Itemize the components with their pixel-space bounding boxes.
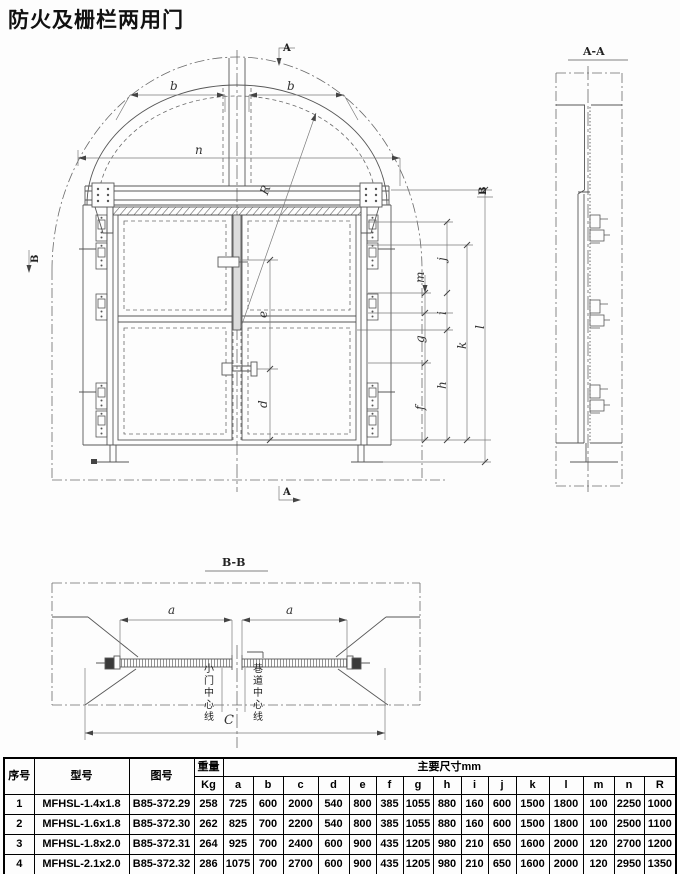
small-door-centerline-label: 小门中心线: [201, 663, 213, 723]
astragal-strip: [233, 215, 241, 330]
door-leaf-left: [118, 215, 232, 440]
dim-value: 900: [349, 835, 376, 855]
row-serial: 1: [4, 795, 34, 815]
dim-value: 210: [461, 835, 488, 855]
side-view-hinges: [590, 215, 610, 413]
wall-right: [336, 617, 420, 705]
dim-label-b-right: b: [287, 80, 295, 92]
dim-value: 2200: [283, 815, 318, 835]
row-drawing-no: B85-372.32: [129, 855, 194, 874]
dim-letter-header: n: [614, 777, 644, 795]
side-view-title: A-A: [583, 46, 605, 57]
dim-value: 385: [376, 815, 403, 835]
dim-value: 1200: [644, 835, 676, 855]
dim-value: 210: [461, 855, 488, 874]
table-row: 4MFHSL-2.1x2.0B85-372.322861075700270060…: [4, 855, 676, 874]
dim-value: 1000: [644, 795, 676, 815]
gusset-plate-left: [92, 183, 114, 207]
door-handle: [222, 362, 257, 376]
row-weight: 262: [194, 815, 223, 835]
latch-box: [218, 257, 239, 267]
centerlines-and-excavation-outline: [52, 50, 622, 748]
dim-label-l: l: [474, 325, 486, 329]
section-marker-a-bottom: A: [283, 488, 291, 498]
dim-value: 540: [318, 795, 349, 815]
row-model: MFHSL-1.4x1.8: [34, 795, 129, 815]
dim-letter-header: m: [583, 777, 614, 795]
row-drawing-no: B85-372.30: [129, 815, 194, 835]
dim-value: 980: [433, 835, 461, 855]
row-model: MFHSL-1.8x2.0: [34, 835, 129, 855]
technical-drawing: [0, 0, 680, 874]
dim-label-i: i: [436, 311, 448, 315]
dim-value: 2000: [549, 835, 583, 855]
plan-section-linework: [52, 571, 420, 705]
dim-value: 900: [349, 855, 376, 874]
dim-value: 160: [461, 795, 488, 815]
dim-value: 435: [376, 835, 403, 855]
dim-value: 1350: [644, 855, 676, 874]
dim-value: 650: [488, 835, 516, 855]
dim-value: 1600: [516, 835, 549, 855]
dim-value: 650: [488, 855, 516, 874]
dim-value: 800: [349, 815, 376, 835]
dim-value: 540: [318, 815, 349, 835]
dim-letter-header: R: [644, 777, 676, 795]
dim-letter-header: a: [223, 777, 253, 795]
dim-letter-header: c: [283, 777, 318, 795]
dim-label-d: d: [257, 400, 269, 408]
dim-value: 2950: [614, 855, 644, 874]
dim-value: 120: [583, 835, 614, 855]
dim-label-f: f: [414, 406, 426, 410]
dim-letter-header: e: [349, 777, 376, 795]
col-header-model: 型号: [34, 758, 129, 795]
dim-value: 600: [488, 815, 516, 835]
dim-value: 385: [376, 795, 403, 815]
dim-value: 435: [376, 855, 403, 874]
dimension-lines: [29, 48, 493, 740]
row-drawing-no: B85-372.29: [129, 795, 194, 815]
dim-letter-header: k: [516, 777, 549, 795]
dimension-ticks: [267, 187, 488, 465]
dim-value: 1205: [403, 835, 433, 855]
dim-letter-header: f: [376, 777, 403, 795]
side-view-linework: [556, 60, 628, 462]
section-marker-a-top: A: [283, 44, 291, 54]
dim-value: 2700: [283, 855, 318, 874]
spec-table: 序号 型号 图号 重量 主要尺寸mm Kg abcdefghijklmnR 1M…: [3, 757, 677, 874]
dim-value: 825: [223, 815, 253, 835]
dim-value: 1500: [516, 815, 549, 835]
dim-value: 700: [253, 855, 283, 874]
dim-value: 1800: [549, 815, 583, 835]
dim-value: 1600: [516, 855, 549, 874]
dim-value: 100: [583, 795, 614, 815]
dim-label-a-left: a: [168, 604, 175, 616]
row-model: MFHSL-1.6x1.8: [34, 815, 129, 835]
col-header-weight: 重量: [194, 758, 223, 777]
dim-value: 1075: [223, 855, 253, 874]
dim-label-m: m: [414, 272, 426, 283]
dim-value: 2000: [283, 795, 318, 815]
col-header-kg: Kg: [194, 777, 223, 795]
table-row: 1MFHSL-1.4x1.8B85-372.292587256002000540…: [4, 795, 676, 815]
dim-letter-header: b: [253, 777, 283, 795]
dim-label-n: n: [195, 144, 203, 156]
dim-label-j: j: [436, 257, 448, 261]
dim-value: 600: [488, 795, 516, 815]
dim-value: 1055: [403, 815, 433, 835]
dim-value: 725: [223, 795, 253, 815]
dim-label-c: C: [224, 714, 234, 727]
dim-label-b-left: b: [170, 80, 178, 92]
dim-value: 1205: [403, 855, 433, 874]
section-marker-b-left: B: [31, 255, 41, 263]
dim-letter-header: i: [461, 777, 488, 795]
footing-anchor: [91, 459, 97, 464]
dim-value: 700: [253, 815, 283, 835]
dim-value: 880: [433, 795, 461, 815]
col-header-serial: 序号: [4, 758, 34, 795]
dim-value: 1800: [549, 795, 583, 815]
leaf-strip-left: [120, 659, 232, 667]
dim-value: 160: [461, 815, 488, 835]
dim-value: 980: [433, 855, 461, 874]
gusset-plate-right: [360, 183, 382, 207]
dim-value: 600: [318, 855, 349, 874]
table-row: 2MFHSL-1.6x1.8B85-372.302628257002200540…: [4, 815, 676, 835]
row-serial: 3: [4, 835, 34, 855]
dim-value: 100: [583, 815, 614, 835]
dim-value: 2400: [283, 835, 318, 855]
pivot-right: [352, 658, 361, 669]
row-model: MFHSL-2.1x2.0: [34, 855, 129, 874]
dim-value: 880: [433, 815, 461, 835]
row-weight: 264: [194, 835, 223, 855]
dim-label-e: e: [257, 311, 269, 318]
dim-label-g: g: [414, 335, 426, 343]
dim-value: 120: [583, 855, 614, 874]
dim-value: 700: [253, 835, 283, 855]
dim-value: 2000: [549, 855, 583, 874]
table-row: 3MFHSL-1.8x2.0B85-372.312649257002400600…: [4, 835, 676, 855]
dim-label-k: k: [456, 342, 468, 349]
dim-value: 600: [318, 835, 349, 855]
dim-letter-header: h: [433, 777, 461, 795]
dim-value: 800: [349, 795, 376, 815]
dim-value: 2250: [614, 795, 644, 815]
dim-value: 1055: [403, 795, 433, 815]
dim-label-h: h: [436, 381, 448, 389]
dim-label-a-right: a: [286, 604, 293, 616]
dim-value: 2500: [614, 815, 644, 835]
section-marker-b-right: B: [479, 187, 489, 195]
col-header-main-dims: 主要尺寸mm: [223, 758, 676, 777]
row-serial: 2: [4, 815, 34, 835]
dim-value: 2700: [614, 835, 644, 855]
row-drawing-no: B85-372.31: [129, 835, 194, 855]
dim-letter-header: j: [488, 777, 516, 795]
roadway-centerline-label: 巷道中心线: [250, 663, 262, 723]
dim-value: 1100: [644, 815, 676, 835]
pivot-left: [105, 658, 114, 669]
plan-section-title: B-B: [222, 557, 245, 568]
row-serial: 4: [4, 855, 34, 874]
row-weight: 258: [194, 795, 223, 815]
dim-letter-header: l: [549, 777, 583, 795]
dim-value: 925: [223, 835, 253, 855]
row-weight: 286: [194, 855, 223, 874]
dim-letter-header: g: [403, 777, 433, 795]
door-top-rail: [113, 207, 361, 215]
col-header-drawing: 图号: [129, 758, 194, 795]
dim-value: 1500: [516, 795, 549, 815]
drawing-page: 防火及栅栏两用门: [0, 0, 680, 874]
dim-letter-header: d: [318, 777, 349, 795]
dim-value: 600: [253, 795, 283, 815]
